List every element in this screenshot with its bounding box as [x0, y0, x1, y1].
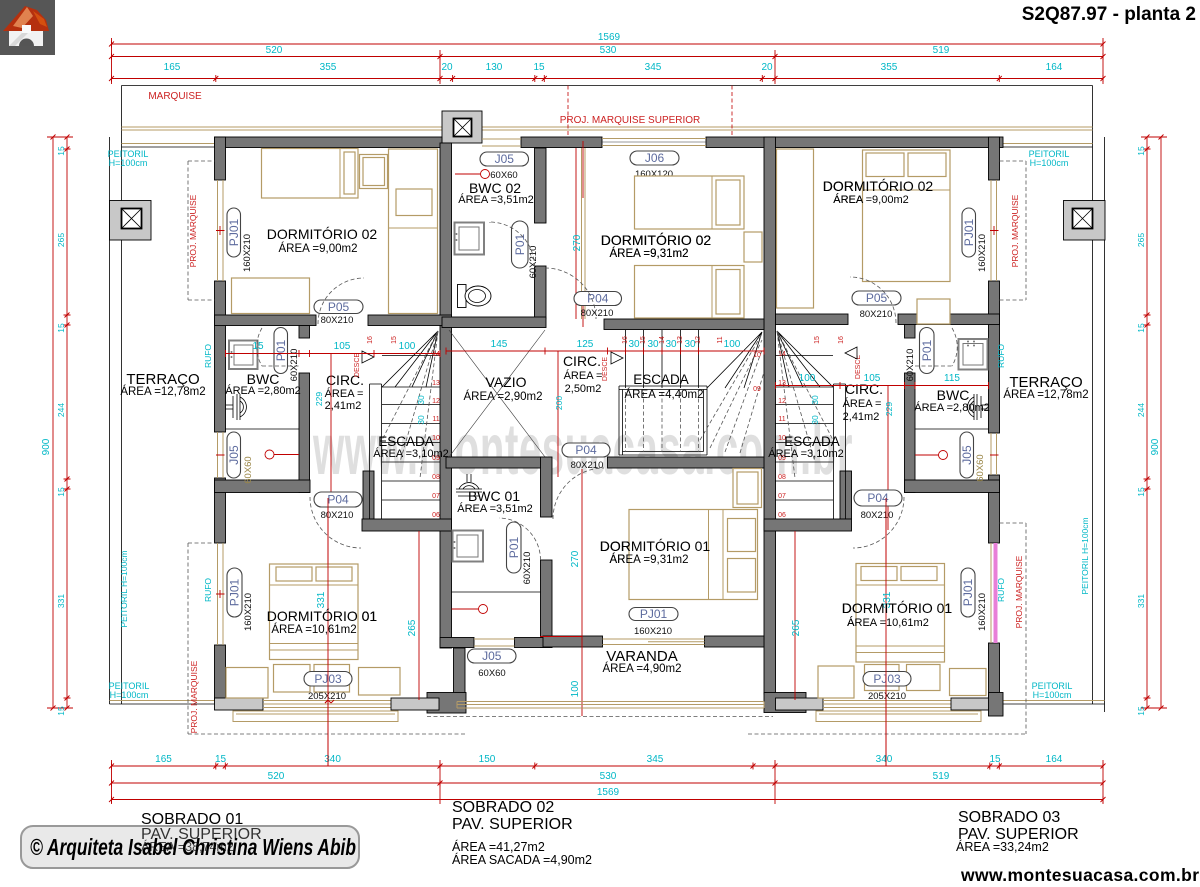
svg-text:520: 520	[266, 45, 283, 56]
svg-text:ÁREA =3,51m2: ÁREA =3,51m2	[458, 193, 534, 206]
svg-text:11: 11	[432, 416, 439, 423]
svg-text:H=100cm: H=100cm	[110, 690, 149, 700]
svg-text:P04: P04	[327, 493, 349, 507]
svg-text:30: 30	[647, 339, 659, 350]
svg-text:P01: P01	[507, 537, 521, 559]
svg-text:530: 530	[600, 771, 617, 782]
svg-text:15: 15	[1136, 706, 1146, 716]
svg-text:80X210: 80X210	[321, 315, 354, 326]
svg-text:09: 09	[753, 386, 761, 393]
svg-text:H=100cm: H=100cm	[1030, 158, 1069, 168]
svg-text:80X210: 80X210	[860, 309, 893, 320]
svg-text:15: 15	[391, 336, 398, 344]
svg-text:164: 164	[1046, 62, 1063, 73]
svg-text:900: 900	[1150, 438, 1161, 455]
svg-text:16: 16	[367, 336, 374, 344]
svg-text:J05: J05	[482, 649, 502, 663]
svg-text:P04: P04	[575, 443, 597, 457]
svg-text:15: 15	[533, 62, 545, 73]
svg-text:30: 30	[628, 339, 640, 350]
svg-text:11: 11	[778, 416, 785, 423]
svg-text:355: 355	[881, 62, 898, 73]
svg-text:ÁREA =33,24m2: ÁREA =33,24m2	[956, 839, 1049, 854]
svg-text:ÁREA =9,31m2: ÁREA =9,31m2	[610, 247, 689, 260]
svg-text:2,41m2: 2,41m2	[325, 400, 362, 412]
svg-text:265: 265	[791, 619, 802, 636]
svg-text:ÁREA =9,00m2: ÁREA =9,00m2	[279, 242, 358, 255]
svg-text:ESCADA: ESCADA	[633, 372, 689, 387]
svg-text:SOBRADO 03: SOBRADO 03	[958, 809, 1060, 826]
svg-text:165: 165	[164, 62, 181, 73]
svg-text:PJ03: PJ03	[873, 672, 901, 686]
svg-text:H=100cm: H=100cm	[109, 158, 148, 168]
svg-text:PROJ. MARQUISE: PROJ. MARQUISE	[1010, 194, 1020, 267]
svg-text:20: 20	[761, 62, 773, 73]
svg-text:340: 340	[876, 754, 893, 765]
svg-text:DESCE: DESCE	[354, 353, 361, 377]
svg-text:205X210: 205X210	[868, 691, 906, 702]
svg-text:160X210: 160X210	[977, 593, 988, 631]
svg-text:CIRC.: CIRC.	[563, 353, 601, 369]
svg-text:60X60: 60X60	[478, 668, 505, 679]
svg-text:15: 15	[56, 487, 66, 497]
svg-text:244: 244	[1136, 403, 1146, 417]
svg-text:PJ01: PJ01	[228, 579, 242, 607]
svg-text:15: 15	[1136, 146, 1146, 156]
svg-text:PJ01: PJ01	[961, 579, 975, 607]
svg-text:115: 115	[944, 373, 960, 384]
svg-text:15: 15	[640, 336, 647, 344]
svg-text:12: 12	[778, 398, 786, 405]
svg-text:ÁREA =12,78m2: ÁREA =12,78m2	[120, 385, 205, 398]
svg-text:DORMITÓRIO 02: DORMITÓRIO 02	[823, 178, 934, 194]
svg-text:PJ01: PJ01	[640, 607, 668, 621]
svg-text:265: 265	[1136, 233, 1146, 247]
svg-text:DORMITÓRIO 01: DORMITÓRIO 01	[267, 608, 378, 624]
svg-text:P04: P04	[587, 292, 609, 306]
svg-text:15: 15	[56, 146, 66, 156]
svg-text:ÁREA =: ÁREA =	[564, 369, 603, 382]
svg-text:J05: J05	[495, 152, 515, 166]
svg-text:100: 100	[570, 680, 581, 697]
svg-text:265: 265	[407, 619, 418, 636]
svg-text:15: 15	[1136, 487, 1146, 497]
svg-text:80X210: 80X210	[321, 510, 354, 521]
svg-text:30: 30	[416, 415, 426, 425]
svg-text:200: 200	[554, 396, 564, 410]
svg-text:RUFO: RUFO	[203, 578, 213, 602]
svg-text:125: 125	[577, 339, 594, 350]
svg-text:© Arquiteta Isabel Christina W: © Arquiteta Isabel Christina Wiens Abib	[30, 834, 356, 860]
svg-text:DORMITÓRIO 01: DORMITÓRIO 01	[842, 600, 953, 616]
svg-text:60X60: 60X60	[490, 170, 517, 181]
svg-text:14: 14	[432, 351, 440, 358]
svg-text:520: 520	[268, 771, 285, 782]
svg-text:ÁREA =: ÁREA =	[325, 387, 364, 400]
svg-text:105: 105	[864, 373, 881, 384]
svg-text:13: 13	[432, 380, 440, 387]
svg-text:30: 30	[810, 395, 820, 405]
svg-text:ÁREA =10,61m2: ÁREA =10,61m2	[847, 616, 929, 629]
svg-text:60X60: 60X60	[975, 454, 986, 481]
svg-text:345: 345	[647, 754, 664, 765]
svg-text:DORMITÓRIO 02: DORMITÓRIO 02	[267, 226, 378, 242]
svg-text:2,41m2: 2,41m2	[843, 411, 880, 423]
svg-text:10: 10	[753, 352, 761, 359]
svg-text:J05: J05	[227, 445, 241, 465]
svg-text:519: 519	[933, 45, 950, 56]
svg-text:20: 20	[441, 62, 453, 73]
svg-text:P01: P01	[513, 234, 527, 256]
svg-text:80X210: 80X210	[861, 510, 894, 521]
svg-text:RUFO: RUFO	[996, 344, 1006, 368]
svg-text:60X210: 60X210	[905, 349, 916, 382]
svg-text:www.montesuacasa.com.br: www.montesuacasa.com.br	[960, 865, 1199, 885]
svg-text:15: 15	[56, 323, 66, 333]
svg-text:30: 30	[665, 339, 677, 350]
svg-text:P05: P05	[866, 291, 888, 305]
svg-text:244: 244	[56, 403, 66, 417]
svg-text:345: 345	[645, 62, 662, 73]
svg-text:15: 15	[56, 706, 66, 716]
svg-text:ÁREA =10,61m2: ÁREA =10,61m2	[271, 623, 356, 636]
svg-text:145: 145	[491, 339, 508, 350]
svg-text:150: 150	[479, 754, 496, 765]
svg-text:265: 265	[56, 233, 66, 247]
svg-text:30: 30	[810, 415, 820, 425]
svg-text:PROJ. MARQUISE SUPERIOR: PROJ. MARQUISE SUPERIOR	[560, 115, 701, 126]
svg-text:229: 229	[314, 392, 324, 406]
svg-text:1569: 1569	[597, 787, 620, 798]
svg-text:PROJ. MARQUISE: PROJ. MARQUISE	[1014, 555, 1024, 628]
svg-text:ÁREA =9,31m2: ÁREA =9,31m2	[610, 553, 689, 566]
svg-text:ESCADA: ESCADA	[378, 434, 434, 449]
svg-text:ÁREA =: ÁREA =	[843, 397, 882, 410]
svg-text:ÁREA =4,40m2: ÁREA =4,40m2	[625, 388, 704, 401]
svg-text:164: 164	[1046, 754, 1063, 765]
svg-text:08: 08	[432, 474, 440, 481]
svg-text:900: 900	[41, 438, 52, 455]
svg-text:ÁREA =41,27m2: ÁREA =41,27m2	[452, 839, 545, 854]
svg-text:165: 165	[155, 754, 172, 765]
svg-text:ÁREA =12,78m2: ÁREA =12,78m2	[1003, 388, 1088, 401]
svg-text:S2Q87.97 - planta 2: S2Q87.97 - planta 2	[1022, 4, 1196, 25]
svg-text:PJ01: PJ01	[227, 219, 241, 247]
svg-text:340: 340	[324, 754, 341, 765]
svg-text:P05: P05	[328, 300, 350, 314]
svg-text:DESCE: DESCE	[602, 357, 609, 381]
svg-text:60X210: 60X210	[522, 552, 533, 585]
svg-text:15: 15	[1136, 323, 1146, 333]
svg-text:160X210: 160X210	[243, 593, 254, 631]
svg-text:06: 06	[778, 512, 786, 519]
svg-text:80X210: 80X210	[571, 460, 604, 471]
svg-text:205X210: 205X210	[308, 691, 346, 702]
svg-text:ÁREA =2,90m2: ÁREA =2,90m2	[464, 390, 543, 403]
svg-text:14: 14	[778, 351, 786, 358]
svg-text:P01: P01	[920, 340, 934, 362]
svg-text:530: 530	[600, 45, 617, 56]
svg-text:07: 07	[432, 493, 440, 500]
svg-text:H=100cm: H=100cm	[1033, 690, 1072, 700]
svg-text:15: 15	[989, 754, 1001, 765]
svg-text:30: 30	[684, 339, 696, 350]
svg-text:ÁREA =3,51m2: ÁREA =3,51m2	[457, 502, 533, 515]
svg-text:06: 06	[432, 512, 440, 519]
svg-text:ÁREA =2,80m2: ÁREA =2,80m2	[225, 384, 301, 397]
svg-text:100: 100	[399, 341, 416, 352]
svg-text:355: 355	[320, 62, 337, 73]
svg-text:519: 519	[933, 771, 950, 782]
svg-text:DORMITÓRIO 01: DORMITÓRIO 01	[600, 538, 711, 554]
svg-text:15: 15	[814, 336, 821, 344]
svg-text:100: 100	[724, 339, 741, 350]
svg-text:331: 331	[316, 591, 327, 608]
svg-text:07: 07	[778, 493, 786, 500]
svg-text:J05: J05	[960, 445, 974, 465]
svg-text:160X210: 160X210	[634, 626, 672, 637]
svg-text:RUFO: RUFO	[203, 344, 213, 368]
svg-text:270: 270	[572, 234, 583, 251]
svg-text:80X210: 80X210	[581, 308, 614, 319]
svg-text:60X210: 60X210	[528, 246, 539, 279]
svg-text:30: 30	[416, 395, 426, 405]
svg-text:331: 331	[1136, 594, 1146, 608]
svg-text:12: 12	[695, 336, 702, 344]
svg-text:PROJ. MARQUISE: PROJ. MARQUISE	[188, 194, 198, 267]
svg-text:MARQUISE: MARQUISE	[148, 91, 202, 102]
svg-text:15: 15	[215, 754, 227, 765]
svg-text:PROJ. MARQUISE: PROJ. MARQUISE	[189, 660, 199, 733]
svg-text:ÁREA =3,10m2: ÁREA =3,10m2	[373, 447, 449, 460]
svg-text:PJ01: PJ01	[962, 219, 976, 247]
svg-text:PEITORIL H=100cm: PEITORIL H=100cm	[119, 550, 129, 627]
svg-text:13: 13	[677, 336, 684, 344]
svg-text:VAZIO: VAZIO	[486, 374, 527, 390]
svg-text:60X60: 60X60	[243, 456, 254, 483]
svg-text:ÁREA =3,10m2: ÁREA =3,10m2	[768, 447, 844, 460]
svg-text:ÁREA SACADA =4,90m2: ÁREA SACADA =4,90m2	[452, 852, 592, 867]
svg-text:1569: 1569	[598, 32, 621, 43]
svg-text:ÁREA =2,80m2: ÁREA =2,80m2	[914, 401, 990, 414]
svg-text:ESCADA: ESCADA	[784, 434, 840, 449]
svg-text:15: 15	[252, 341, 264, 352]
svg-text:BWC: BWC	[937, 387, 970, 403]
svg-text:ÁREA =4,90m2: ÁREA =4,90m2	[603, 662, 682, 675]
svg-text:2,50m2: 2,50m2	[565, 383, 602, 395]
svg-text:PEITORIL H=100cm: PEITORIL H=100cm	[1080, 517, 1090, 594]
svg-text:160X210: 160X210	[242, 234, 253, 272]
svg-text:331: 331	[56, 594, 66, 608]
svg-text:08: 08	[778, 474, 786, 481]
svg-text:100: 100	[799, 373, 816, 384]
svg-text:270: 270	[570, 550, 581, 567]
svg-text:J06: J06	[645, 151, 665, 165]
svg-text:16: 16	[838, 336, 845, 344]
svg-text:105: 105	[334, 341, 351, 352]
svg-text:PAV. SUPERIOR: PAV. SUPERIOR	[452, 816, 573, 833]
svg-text:160X210: 160X210	[977, 234, 988, 272]
svg-text:229: 229	[884, 402, 894, 416]
svg-text:SOBRADO 02: SOBRADO 02	[452, 799, 554, 816]
svg-text:DORMITÓRIO 02: DORMITÓRIO 02	[601, 232, 712, 248]
svg-text:RUFO: RUFO	[996, 578, 1006, 602]
svg-text:P01: P01	[274, 340, 288, 362]
svg-text:12: 12	[432, 398, 440, 405]
svg-text:ÁREA =9,00m2: ÁREA =9,00m2	[833, 193, 909, 206]
svg-text:130: 130	[486, 62, 503, 73]
